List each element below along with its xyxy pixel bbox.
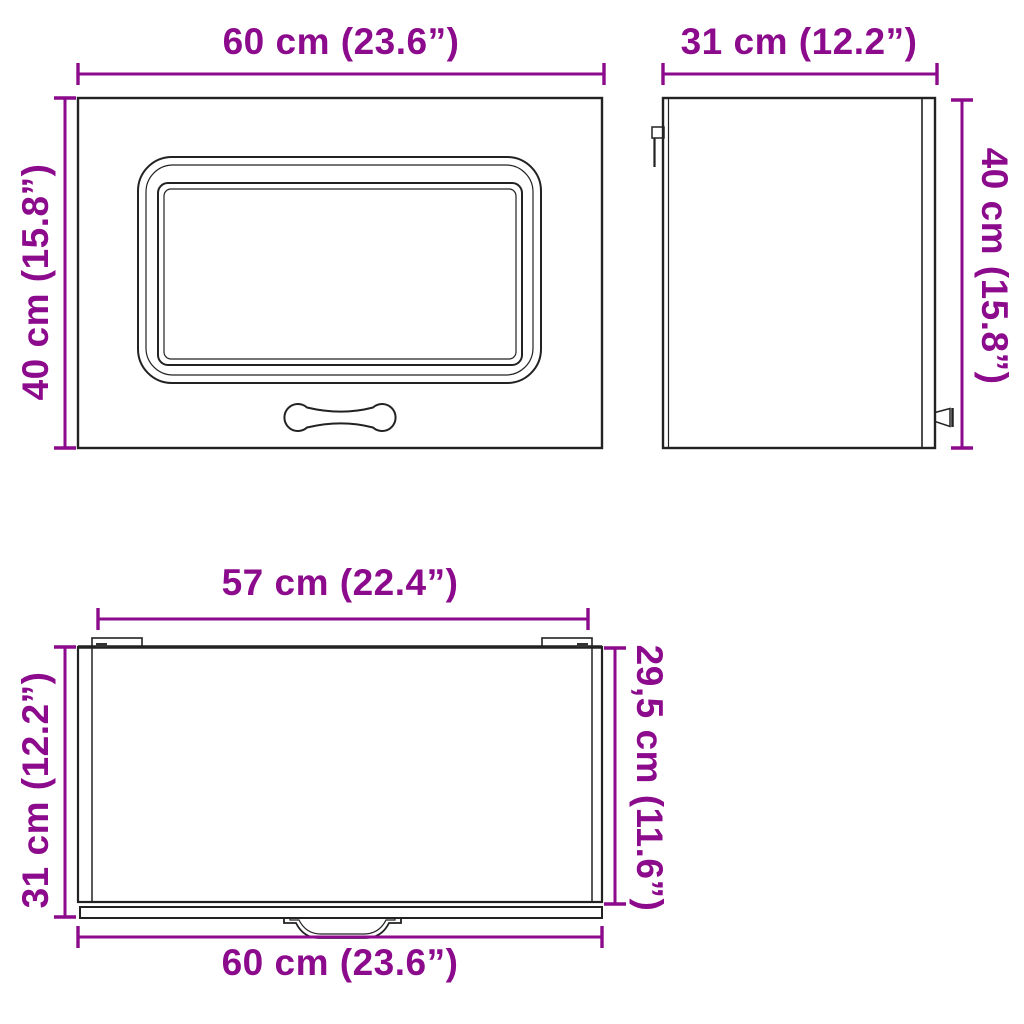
side-view — [652, 98, 953, 448]
top-inner-width-dimension-line — [98, 608, 588, 630]
top-body-outline — [78, 647, 602, 902]
side-height-dimension-label: 40 cm (15.8”) — [973, 148, 1015, 385]
side-height-dimension-line — [951, 100, 973, 448]
side-depth-dimension-line — [663, 63, 937, 85]
side-depth-dimension-label: 31 cm (12.2”) — [681, 21, 918, 63]
top-inner-depth-dimension-line — [604, 648, 626, 904]
front-width-dimension-label: 60 cm (23.6”) — [223, 21, 460, 63]
top-inner-width-dimension-label: 57 cm (22.4”) — [222, 562, 459, 604]
top-depth-dimension-line — [54, 647, 76, 917]
side-cabinet-outline — [663, 98, 935, 448]
front-view — [78, 98, 602, 448]
front-height-dimension-line — [54, 98, 76, 448]
top-depth-dimension-label: 31 cm (12.2”) — [15, 672, 57, 909]
glass-panel-frame — [138, 157, 541, 383]
door-handle-front — [284, 404, 395, 431]
door-knob-side — [935, 408, 953, 427]
dimension-diagram: 60 cm (23.6”) 31 cm (12.2”) 40 cm (15.8”… — [0, 0, 1024, 1024]
dimension-lines — [54, 63, 973, 948]
front-height-dimension-label: 40 cm (15.8”) — [15, 164, 57, 401]
front-width-dimension-line — [78, 63, 604, 85]
top-inner-depth-dimension-label: 29,5 cm (11.6”) — [628, 645, 670, 912]
door-front-strip — [80, 907, 602, 918]
door-handle-top — [284, 918, 401, 938]
diagram-canvas — [0, 0, 1024, 1024]
bottom-width-dimension-label: 60 cm (23.6”) — [222, 942, 459, 984]
top-view — [78, 638, 602, 938]
front-cabinet-outline — [78, 98, 602, 448]
